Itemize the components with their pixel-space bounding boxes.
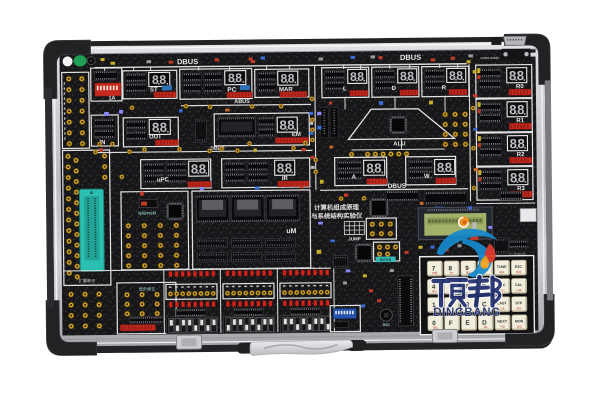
svg-text:下条: 下条 [500, 325, 506, 329]
svg-text:ESC: ESC [515, 265, 523, 269]
svg-text:INTER: INTER [380, 258, 392, 262]
svg-text:DINGBANG: DINGBANG [433, 307, 500, 319]
svg-text:88: 88 [400, 69, 415, 83]
svg-text:取消: 取消 [516, 270, 522, 274]
svg-text:MON: MON [515, 319, 524, 323]
svg-text:88: 88 [279, 117, 295, 132]
svg-text:计算机组成原理: 计算机组成原理 [314, 202, 359, 211]
svg-text:ALU: ALU [393, 141, 405, 147]
svg-text:L: L [343, 87, 347, 93]
svg-text:计算: 计算 [516, 288, 522, 292]
svg-text:88: 88 [191, 161, 207, 176]
svg-text:OUT: OUT [149, 134, 162, 140]
svg-text:监控: 监控 [517, 325, 523, 329]
svg-text:88: 88 [228, 71, 243, 85]
svg-text:CAL: CAL [515, 283, 523, 287]
svg-text:88: 88 [366, 161, 382, 176]
svg-text:1A: 1A [108, 95, 115, 101]
svg-text:F: F [449, 320, 453, 327]
svg-text:STP: STP [515, 301, 523, 305]
svg-text:TUNE: TUNE [497, 265, 507, 269]
svg-text:R: R [442, 85, 447, 91]
svg-text:A: A [352, 174, 357, 180]
svg-text:88: 88 [510, 136, 526, 151]
svg-text:减址: 减址 [433, 325, 439, 329]
svg-text:中断: 中断 [432, 271, 438, 275]
svg-text:88: 88 [277, 160, 293, 175]
svg-text:88: 88 [350, 70, 365, 84]
svg-text:调试: 调试 [499, 270, 505, 274]
svg-text:SP: SP [450, 271, 454, 275]
svg-text:输入: 输入 [432, 289, 438, 293]
svg-text:JUMP: JUMP [348, 236, 361, 241]
svg-text:88: 88 [152, 73, 167, 87]
svg-text:DBUS: DBUS [400, 53, 421, 62]
svg-text:DBUS: DBUS [177, 57, 198, 66]
svg-text:D: D [392, 86, 397, 92]
svg-text:微程序控制: 微程序控制 [138, 211, 156, 216]
svg-text:uPC: uPC [157, 177, 170, 183]
svg-text:NEXT: NEXT [497, 320, 507, 324]
svg-text:减1: 减1 [484, 325, 489, 329]
svg-text:RST: RST [383, 323, 391, 327]
svg-text:单步: 单步 [516, 306, 522, 310]
svg-text:88: 88 [437, 160, 453, 175]
svg-text:W: W [424, 174, 430, 180]
svg-text:DBUS: DBUS [388, 183, 407, 190]
svg-text:88: 88 [509, 68, 525, 83]
svg-text:EM: EM [292, 132, 301, 138]
svg-text:88: 88 [510, 170, 526, 185]
svg-text:88: 88 [152, 120, 168, 135]
svg-text:88: 88 [280, 71, 295, 85]
svg-text:88: 88 [449, 69, 464, 83]
svg-text:88: 88 [509, 102, 525, 117]
svg-text:uM: uM [286, 228, 296, 235]
svg-text:COM1 COM2: COM1 COM2 [480, 56, 499, 60]
svg-text:ABUS: ABUS [234, 99, 250, 105]
